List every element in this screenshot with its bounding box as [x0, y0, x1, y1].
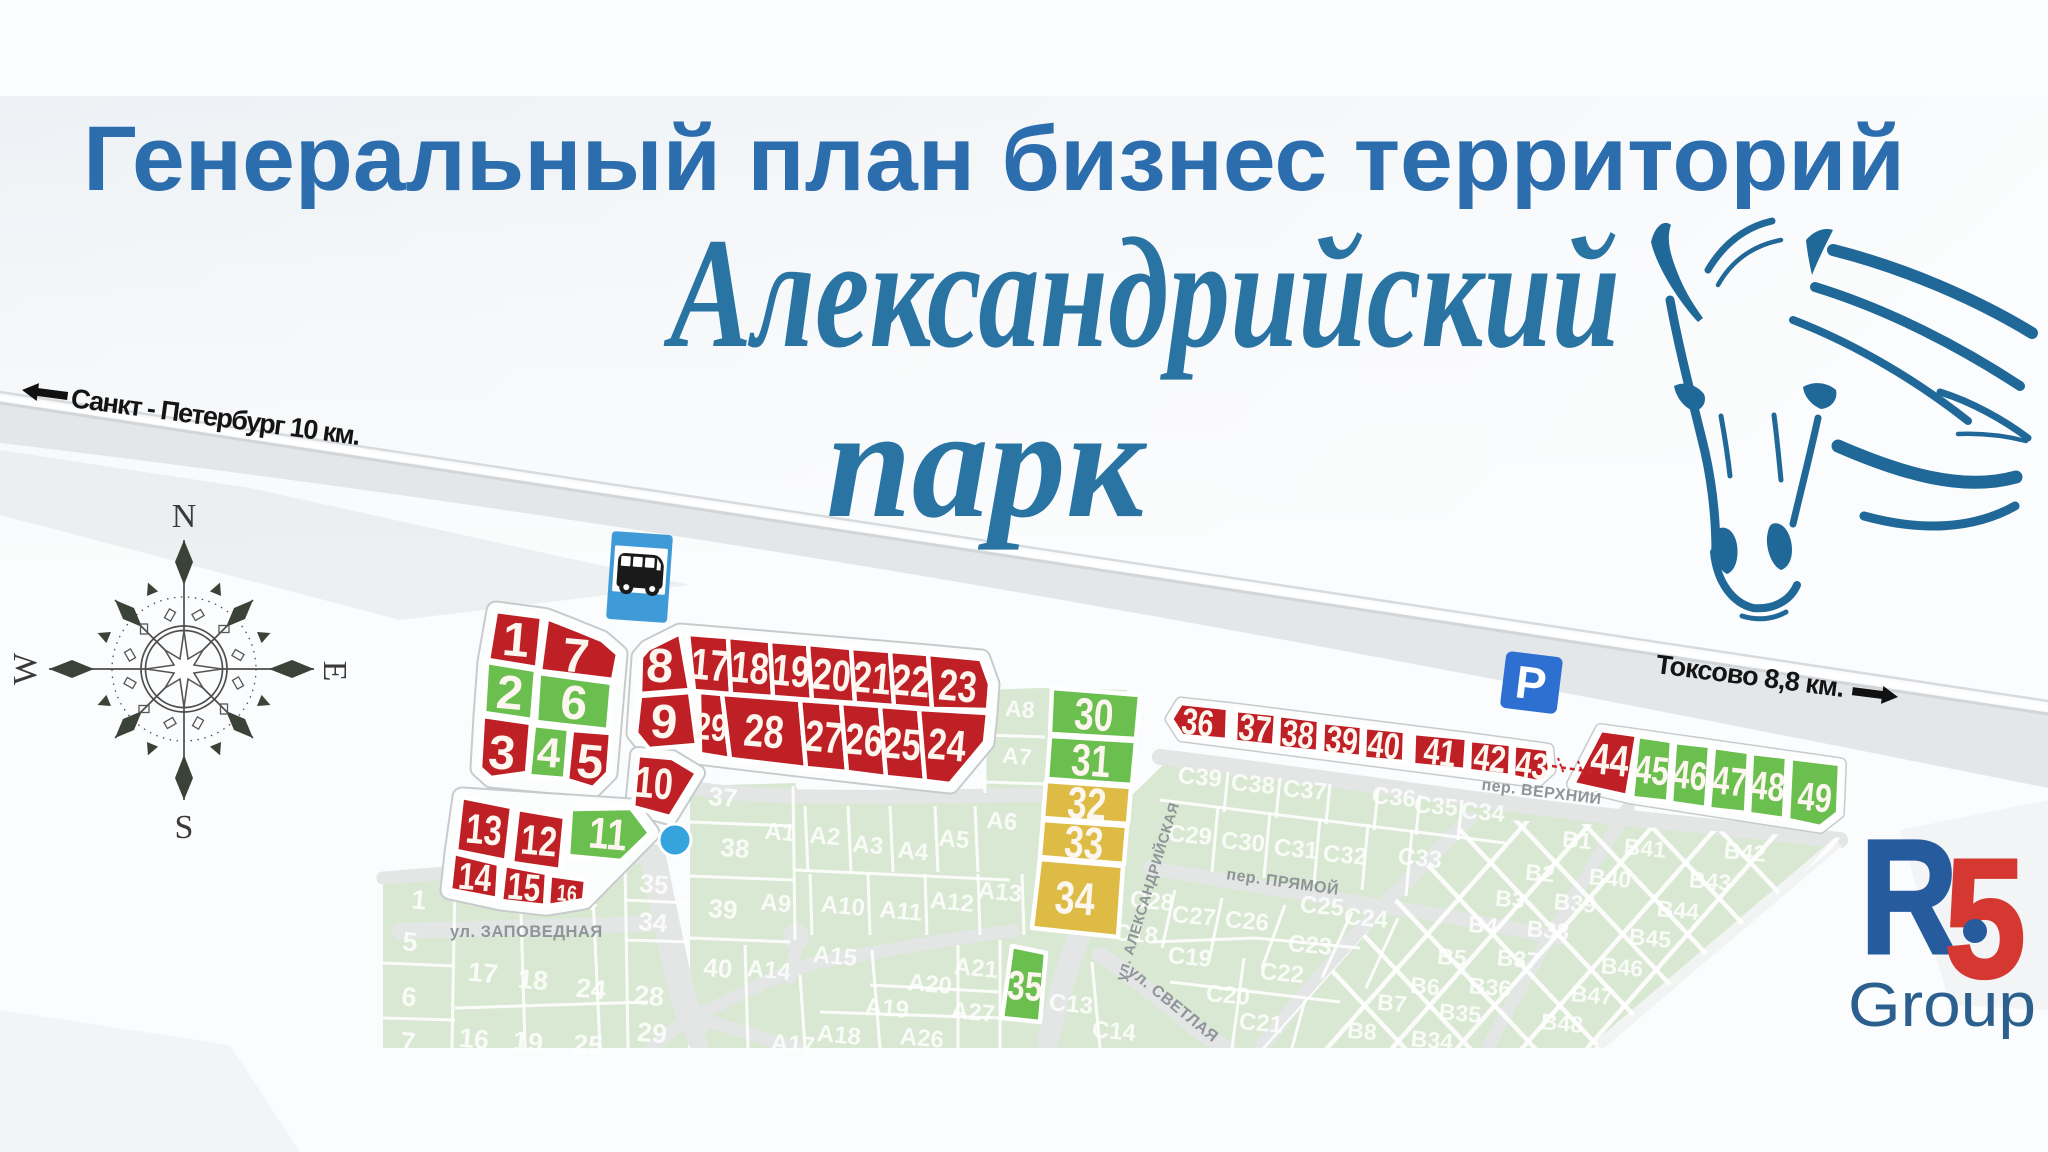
svg-text:C30: C30: [1220, 827, 1266, 858]
svg-text:1: 1: [500, 613, 531, 668]
svg-text:A15: A15: [812, 941, 858, 972]
svg-text:19: 19: [770, 645, 812, 697]
svg-text:18: 18: [517, 964, 550, 997]
svg-text:10: 10: [633, 757, 675, 809]
svg-text:C38: C38: [1230, 769, 1276, 800]
svg-text:21: 21: [851, 652, 893, 704]
svg-text:A1: A1: [763, 818, 796, 848]
svg-text:A6: A6: [985, 807, 1018, 837]
svg-text:B42: B42: [1723, 837, 1767, 867]
svg-text:B4: B4: [1467, 911, 1499, 939]
svg-text:12: 12: [519, 816, 559, 866]
svg-text:44: 44: [1588, 734, 1631, 787]
svg-text:E: E: [316, 661, 353, 682]
svg-text:B5: B5: [1436, 943, 1468, 971]
svg-text:35: 35: [1006, 962, 1044, 1010]
svg-text:25: 25: [572, 1029, 605, 1062]
svg-text:34: 34: [637, 906, 669, 938]
svg-text:42: 42: [1472, 736, 1509, 781]
svg-text:22: 22: [890, 655, 932, 707]
svg-text:B48: B48: [1540, 1008, 1585, 1038]
svg-text:C37: C37: [1282, 775, 1328, 806]
svg-text:Генеральный план бизнес террит: Генеральный план бизнес территорий: [83, 108, 1905, 210]
svg-text:W: W: [7, 652, 44, 685]
svg-text:A13: A13: [977, 877, 1023, 908]
svg-text:B1: B1: [1561, 826, 1593, 854]
svg-text:48: 48: [1749, 763, 1787, 810]
svg-text:16: 16: [556, 879, 578, 907]
svg-text:B2: B2: [1524, 859, 1556, 887]
svg-text:37: 37: [1237, 706, 1274, 751]
svg-text:28: 28: [633, 980, 666, 1013]
svg-text:B7: B7: [1376, 989, 1408, 1017]
svg-text:A3: A3: [851, 831, 884, 861]
svg-text:29: 29: [693, 706, 730, 751]
svg-text:13: 13: [464, 805, 504, 855]
svg-text:ул. ЗАПОВЕДНАЯ: ул. ЗАПОВЕДНАЯ: [450, 923, 603, 941]
svg-text:B43: B43: [1688, 866, 1732, 896]
svg-text:19: 19: [512, 1026, 545, 1059]
svg-text:18: 18: [729, 642, 771, 694]
svg-text:29: 29: [636, 1017, 669, 1050]
svg-text:27: 27: [803, 711, 845, 763]
svg-text:C31: C31: [1273, 834, 1319, 865]
svg-text:C21: C21: [1238, 1008, 1284, 1039]
svg-text:B45: B45: [1628, 923, 1673, 953]
svg-text:17: 17: [689, 639, 731, 691]
svg-text:4: 4: [535, 728, 563, 777]
svg-text:25: 25: [881, 718, 923, 770]
svg-text:40: 40: [702, 952, 733, 984]
svg-text:B41: B41: [1623, 833, 1668, 863]
svg-text:45: 45: [1633, 747, 1671, 794]
svg-text:15: 15: [506, 866, 543, 911]
svg-text:C26: C26: [1224, 906, 1270, 937]
svg-text:43: 43: [1514, 743, 1551, 788]
svg-text:A8: A8: [1004, 695, 1036, 723]
svg-text:1: 1: [410, 884, 428, 915]
svg-text:B47: B47: [1570, 980, 1614, 1010]
svg-text:23: 23: [937, 660, 979, 712]
svg-text:A27: A27: [950, 997, 996, 1028]
svg-text:36: 36: [1179, 700, 1216, 745]
svg-text:34: 34: [1053, 871, 1097, 926]
svg-text:P: P: [1512, 655, 1549, 710]
svg-text:14: 14: [457, 856, 494, 901]
svg-text:9: 9: [648, 695, 679, 750]
svg-text:38: 38: [1280, 712, 1317, 757]
svg-text:C14: C14: [1091, 1016, 1138, 1047]
svg-text:33: 33: [1063, 816, 1105, 870]
svg-text:A26: A26: [899, 1023, 945, 1054]
svg-text:C32: C32: [1322, 840, 1368, 871]
svg-text:C22: C22: [1259, 958, 1305, 989]
svg-text:11: 11: [587, 808, 629, 860]
svg-text:28: 28: [742, 703, 786, 758]
svg-text:26: 26: [843, 714, 885, 766]
svg-text:C34: C34: [1460, 797, 1507, 828]
svg-text:B35: B35: [1438, 998, 1483, 1028]
svg-text:A7: A7: [1001, 742, 1033, 770]
svg-text:A11: A11: [879, 896, 924, 927]
svg-text:C33: C33: [1397, 843, 1443, 874]
svg-text:A18: A18: [816, 1020, 862, 1051]
svg-text:7: 7: [399, 1026, 417, 1057]
svg-text:B38: B38: [1526, 915, 1571, 945]
svg-text:16: 16: [458, 1023, 491, 1056]
svg-text:5: 5: [574, 735, 605, 790]
svg-text:C20: C20: [1205, 980, 1251, 1011]
svg-text:3: 3: [486, 726, 517, 781]
svg-text:A2: A2: [808, 822, 841, 852]
svg-text:N: N: [172, 498, 197, 535]
svg-text:24: 24: [926, 719, 969, 771]
svg-text:41: 41: [1422, 730, 1459, 775]
svg-text:C36: C36: [1371, 782, 1417, 813]
svg-text:37: 37: [707, 781, 738, 813]
svg-text:A19: A19: [864, 993, 910, 1024]
svg-text:38: 38: [719, 832, 750, 864]
svg-text:парк: парк: [826, 376, 1148, 551]
svg-text:B3: B3: [1494, 885, 1526, 913]
svg-text:C13: C13: [1048, 989, 1094, 1020]
svg-text:A14: A14: [746, 955, 793, 986]
svg-text:A4: A4: [896, 837, 930, 867]
svg-text:A5: A5: [937, 825, 970, 855]
svg-text:2: 2: [494, 666, 525, 721]
svg-text:B46: B46: [1600, 952, 1644, 982]
svg-text:8: 8: [644, 639, 675, 694]
svg-text:A20: A20: [907, 969, 953, 1000]
svg-text:35: 35: [638, 868, 669, 900]
svg-text:S: S: [175, 809, 194, 846]
svg-text:Group: Group: [1848, 971, 2036, 1040]
svg-text:24: 24: [575, 973, 608, 1006]
svg-text:B36: B36: [1468, 972, 1512, 1002]
svg-text:C35: C35: [1413, 791, 1459, 822]
svg-text:B37: B37: [1496, 944, 1540, 974]
svg-text:40: 40: [1366, 723, 1403, 768]
svg-text:49: 49: [1796, 774, 1834, 821]
svg-text:47: 47: [1711, 758, 1749, 805]
svg-text:46: 46: [1671, 752, 1709, 799]
svg-text:C39: C39: [1177, 762, 1223, 793]
svg-text:B39: B39: [1553, 888, 1597, 918]
svg-text:C24: C24: [1343, 903, 1390, 934]
svg-text:B44: B44: [1656, 895, 1701, 925]
svg-text:A17: A17: [770, 1029, 816, 1060]
svg-text:5: 5: [401, 926, 419, 957]
svg-text:Александрийский: Александрийский: [663, 206, 1620, 381]
svg-text:39: 39: [707, 893, 738, 925]
svg-text:39: 39: [1324, 718, 1361, 763]
svg-text:A12: A12: [929, 887, 975, 918]
svg-text:20: 20: [811, 649, 853, 701]
svg-text:B8: B8: [1346, 1017, 1378, 1045]
svg-text:A9: A9: [759, 889, 792, 919]
svg-text:C23: C23: [1287, 930, 1333, 961]
svg-text:C27: C27: [1171, 901, 1217, 932]
svg-text:A10: A10: [820, 891, 866, 922]
svg-text:B6: B6: [1409, 972, 1441, 1000]
svg-text:B40: B40: [1588, 863, 1632, 893]
svg-text:A21: A21: [953, 953, 999, 984]
svg-text:17: 17: [467, 957, 500, 990]
svg-text:6: 6: [400, 981, 418, 1012]
svg-text:6: 6: [558, 676, 589, 731]
svg-text:B34: B34: [1410, 1025, 1455, 1055]
svg-text:C19: C19: [1167, 942, 1213, 973]
